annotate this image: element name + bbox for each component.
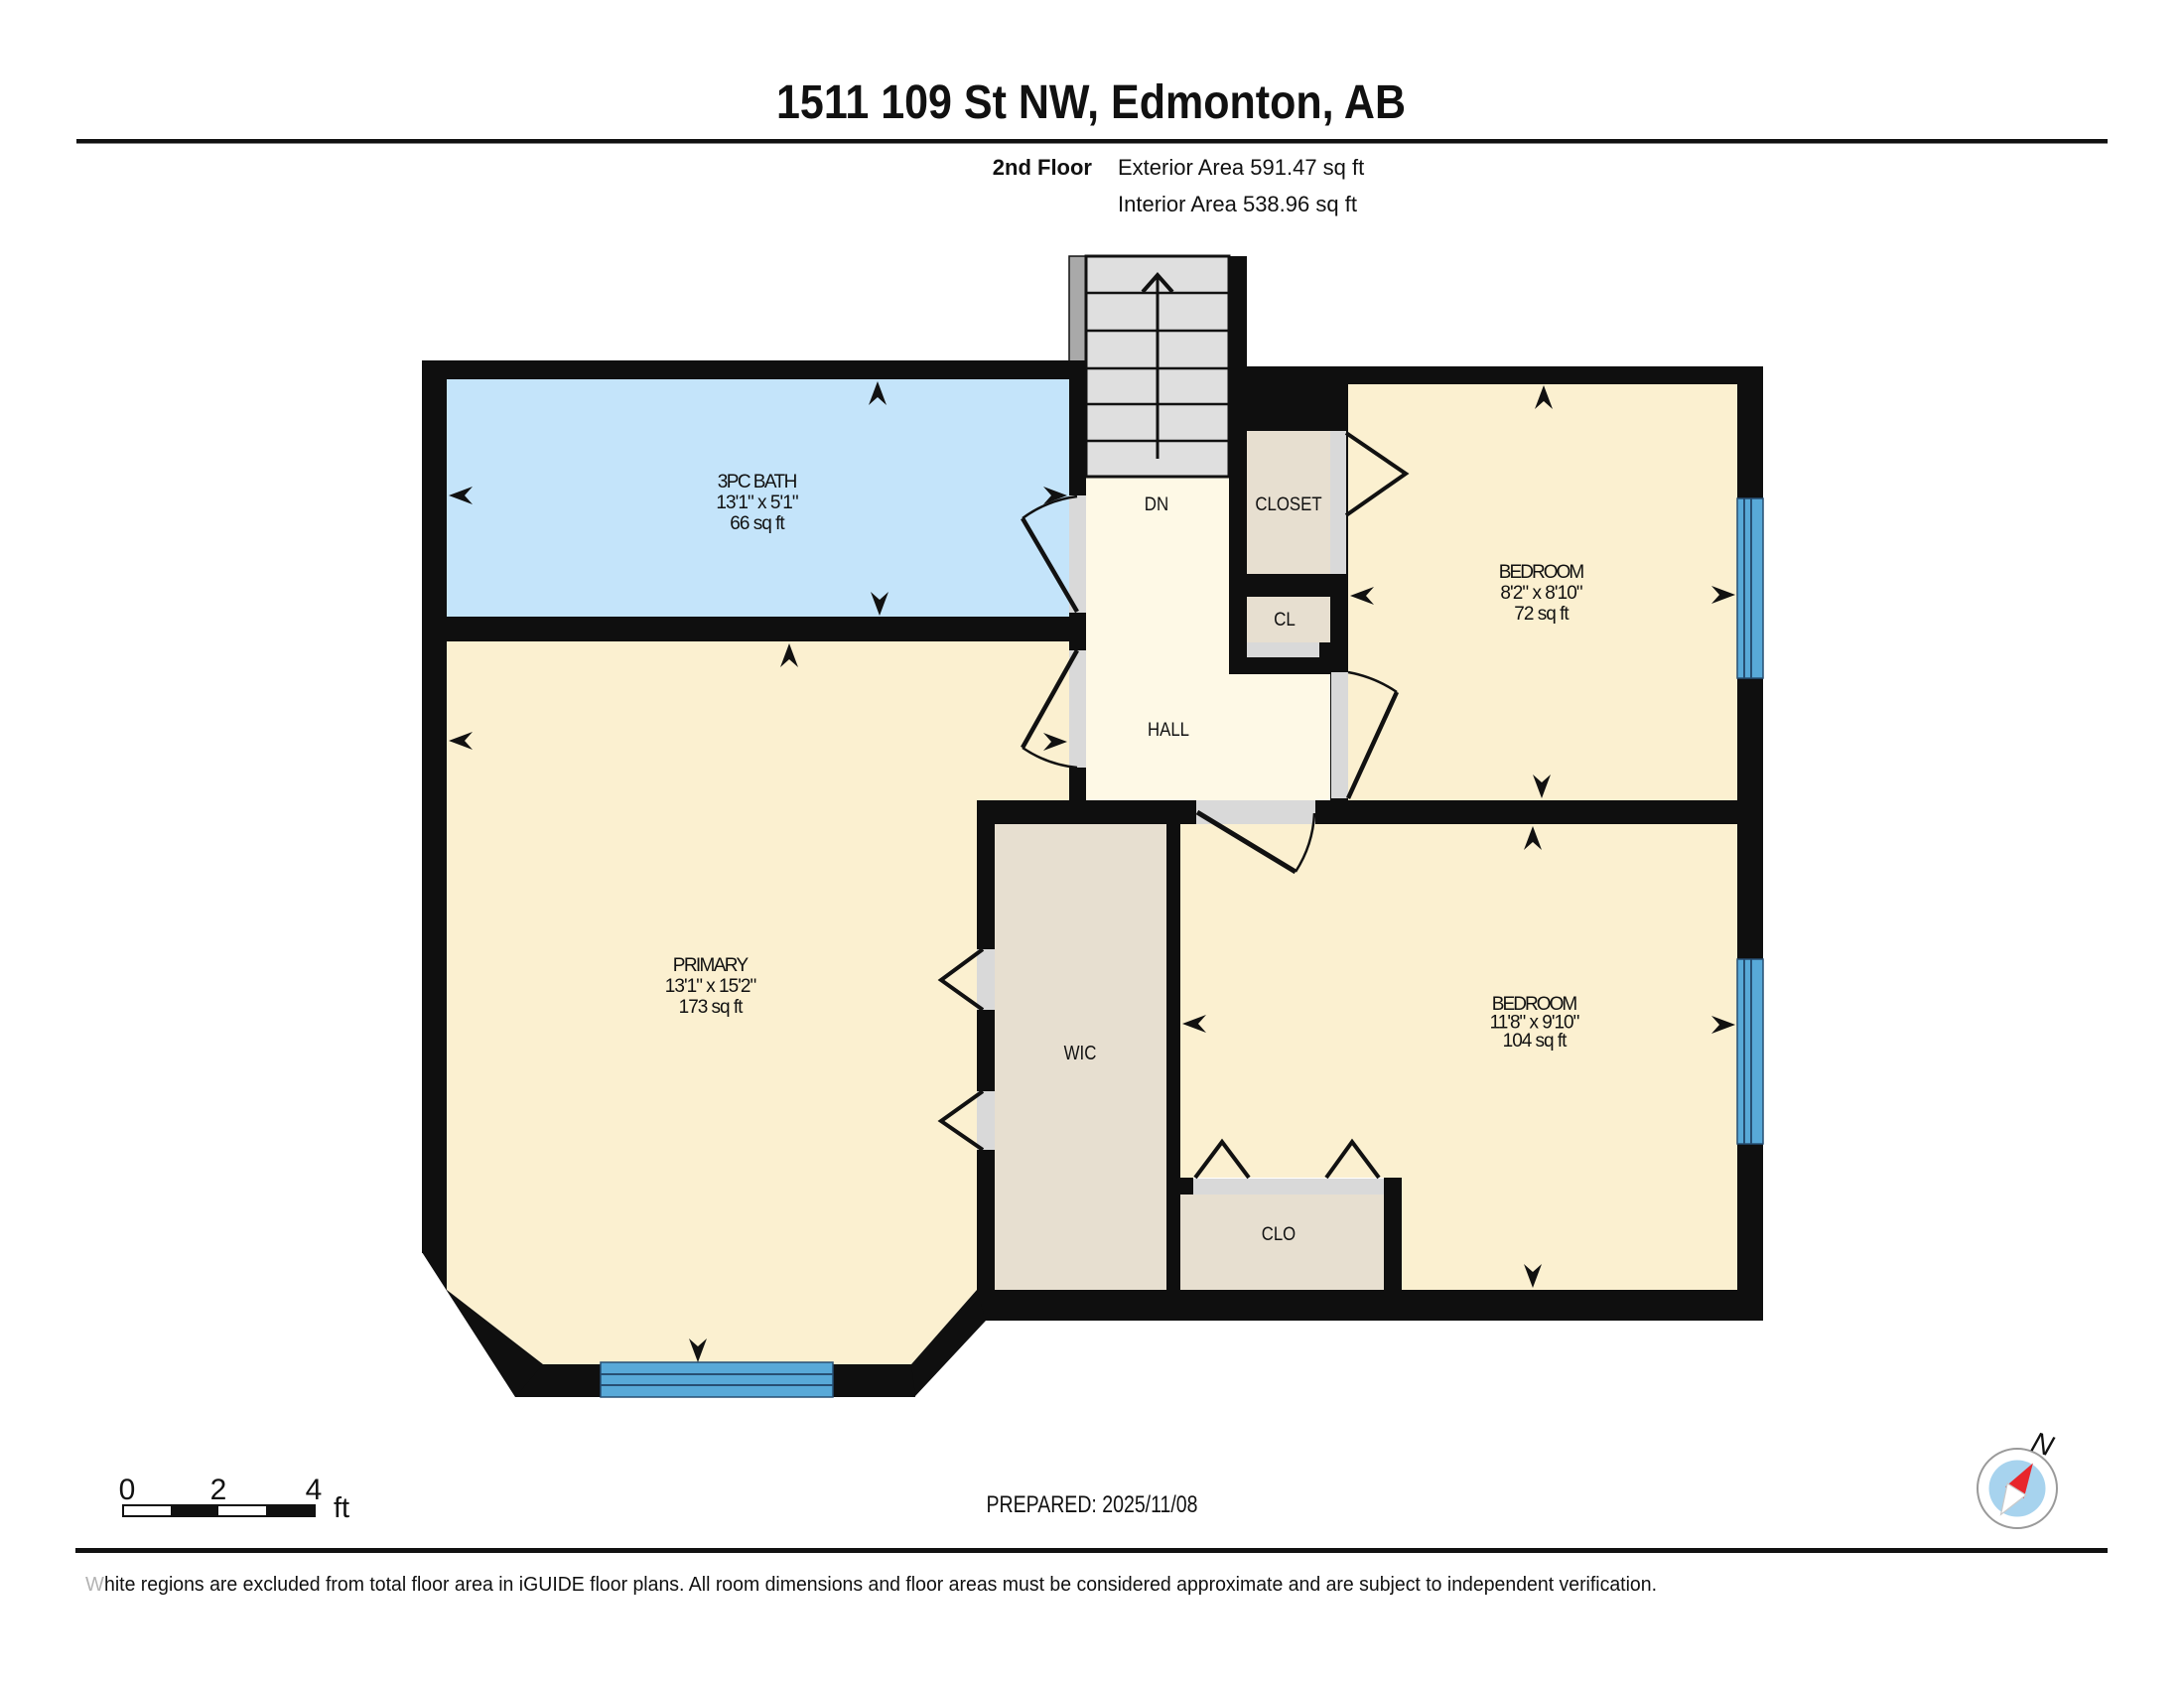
svg-text:CLO: CLO <box>1262 1224 1296 1245</box>
svg-text:104 sq ft: 104 sq ft <box>1503 1031 1568 1052</box>
svg-text:CLOSET: CLOSET <box>1255 494 1322 515</box>
svg-text:Interior Area 538.96 sq ft: Interior Area 538.96 sq ft <box>1118 192 1357 216</box>
svg-text:ft: ft <box>334 1492 349 1524</box>
svg-text:W: W <box>85 1574 104 1596</box>
svg-text:0: 0 <box>119 1474 136 1506</box>
svg-text:8'2" x 8'10": 8'2" x 8'10" <box>1500 583 1582 604</box>
svg-text:hite regions are excluded from: hite regions are excluded from total flo… <box>104 1574 1657 1596</box>
svg-text:PREPARED: 2025/11/08: PREPARED: 2025/11/08 <box>987 1491 1198 1518</box>
svg-text:2nd Floor: 2nd Floor <box>993 155 1093 180</box>
svg-text:13'1" x 5'1": 13'1" x 5'1" <box>716 492 798 513</box>
svg-text:66 sq ft: 66 sq ft <box>730 513 785 534</box>
svg-text:Exterior Area 591.47 sq ft: Exterior Area 591.47 sq ft <box>1118 155 1364 180</box>
svg-text:13'1" x 15'2": 13'1" x 15'2" <box>665 976 756 997</box>
svg-text:WIC: WIC <box>1064 1043 1097 1064</box>
svg-text:2: 2 <box>210 1474 227 1506</box>
svg-text:CL: CL <box>1274 610 1296 631</box>
svg-text:3PC BATH: 3PC BATH <box>718 472 798 492</box>
svg-text:PRIMARY: PRIMARY <box>673 955 750 976</box>
svg-text:HALL: HALL <box>1148 720 1189 741</box>
svg-text:173 sq ft: 173 sq ft <box>679 997 744 1018</box>
svg-text:4: 4 <box>306 1474 323 1506</box>
svg-text:1511 109 St NW, Edmonton, AB: 1511 109 St NW, Edmonton, AB <box>776 76 1406 129</box>
svg-text:BEDROOM: BEDROOM <box>1499 562 1585 583</box>
svg-text:72 sq ft: 72 sq ft <box>1514 604 1570 625</box>
svg-text:DN: DN <box>1145 494 1168 515</box>
